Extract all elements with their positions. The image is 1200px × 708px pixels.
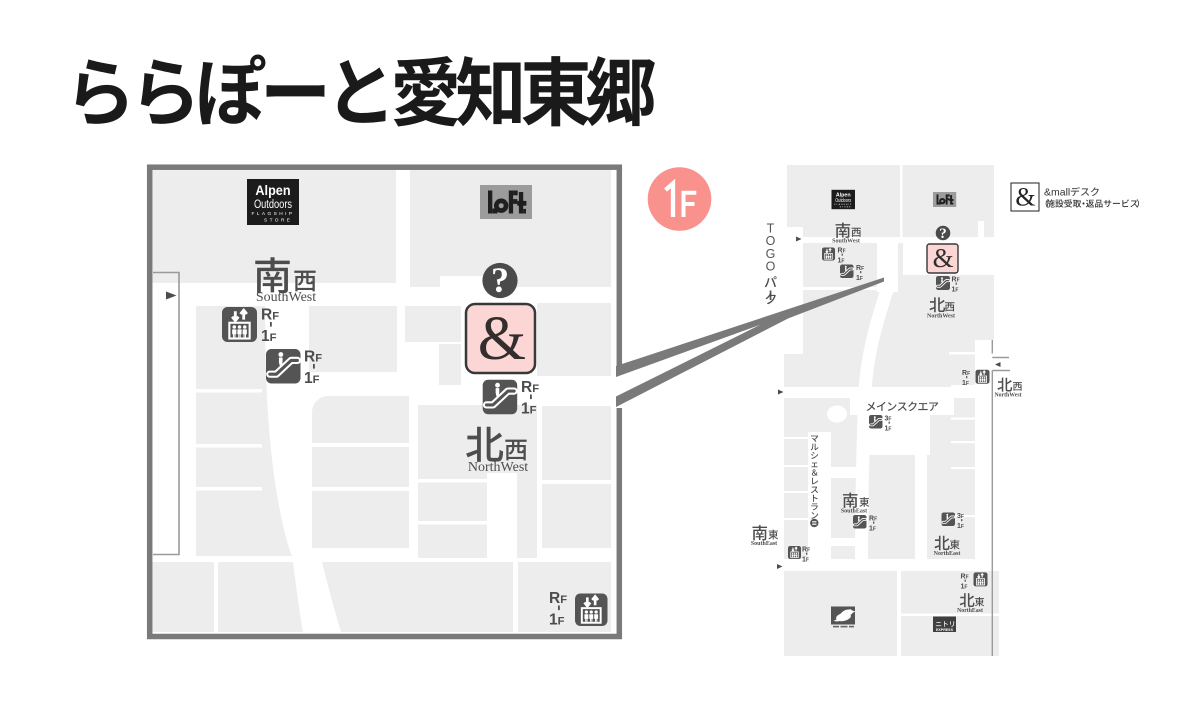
svg-text:?: ? (491, 260, 509, 300)
svg-text:RF: RF (802, 547, 810, 554)
svg-text:1F: 1F (952, 286, 959, 293)
svg-text:RF: RF (962, 370, 970, 377)
svg-text:3F: 3F (885, 416, 892, 423)
svg-text:Outdoors: Outdoors (254, 198, 293, 212)
svg-text:STORE: STORE (264, 218, 292, 224)
svg-text:1F: 1F (961, 583, 968, 590)
svg-text:Outdoors: Outdoors (835, 198, 852, 204)
svg-text:SouthWest: SouthWest (256, 290, 316, 305)
svg-text:?: ? (939, 226, 947, 242)
svg-text:NorthWest: NorthWest (468, 460, 528, 475)
svg-text:1F: 1F (838, 257, 845, 264)
svg-text:RF: RF (869, 516, 877, 523)
svg-text:NorthWest: NorthWest (994, 393, 1021, 399)
svg-text:1F: 1F (802, 556, 809, 563)
svg-text:&: & (933, 243, 954, 273)
svg-text:1F: 1F (885, 425, 892, 432)
svg-text:NorthEast: NorthEast (934, 551, 961, 557)
svg-text:3F: 3F (957, 513, 964, 520)
svg-text:NorthWest: NorthWest (927, 314, 955, 320)
svg-text:EXPRESS: EXPRESS (936, 628, 954, 632)
svg-text:RF: RF (856, 265, 864, 272)
svg-text:STORE: STORE (840, 207, 852, 209)
svg-text:1F: 1F (957, 523, 964, 530)
svg-text:Alpen: Alpen (255, 182, 290, 198)
svg-text:SouthWest: SouthWest (832, 239, 860, 245)
svg-text:&mall: &mall (1044, 187, 1070, 199)
svg-text:FLAGSHIP: FLAGSHIP (834, 203, 852, 206)
svg-text:SouthEast: SouthEast (751, 541, 777, 547)
svg-text:RF: RF (838, 248, 846, 255)
svg-text:NorthEast: NorthEast (957, 608, 983, 614)
svg-text:1F: 1F (962, 380, 969, 387)
svg-text:1F: 1F (856, 275, 863, 282)
svg-text:1F: 1F (869, 525, 876, 532)
svg-text:RF: RF (952, 277, 960, 284)
svg-text:O: O (766, 260, 776, 274)
svg-text:FLAGSHIP: FLAGSHIP (252, 211, 295, 217)
svg-text:SouthEast: SouthEast (841, 509, 867, 515)
svg-text:RF: RF (961, 574, 969, 581)
svg-text:&: & (478, 305, 526, 373)
svg-text:&: & (1015, 183, 1035, 212)
